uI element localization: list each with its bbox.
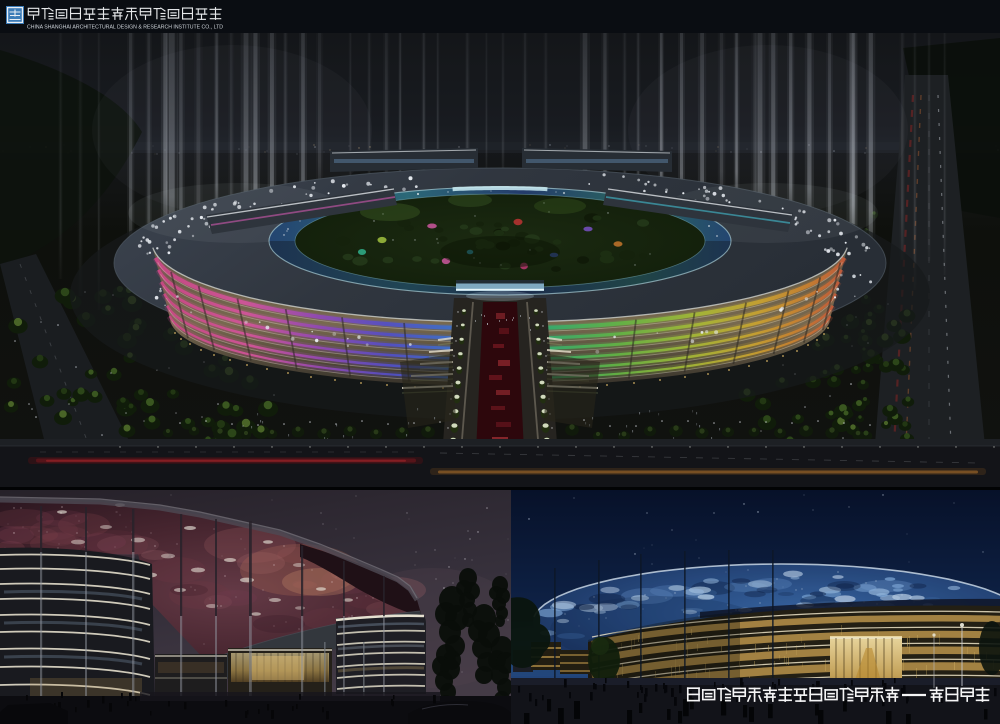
svg-text:CHINA SHANGHAI ARCHITECTURAL D: CHINA SHANGHAI ARCHITECTURAL DESIGN & RE… <box>27 25 223 31</box>
